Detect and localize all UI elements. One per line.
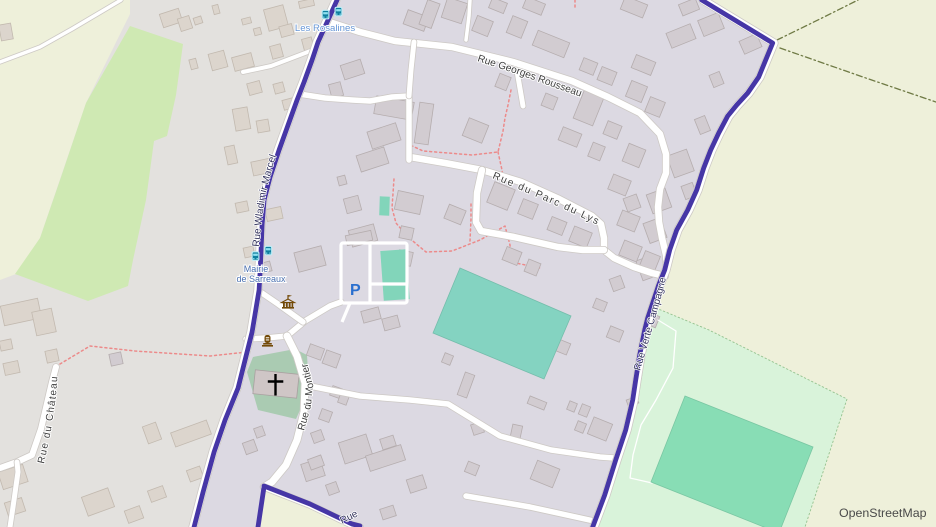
svg-text:Mairie: Mairie (244, 264, 269, 274)
svg-text:P: P (350, 282, 361, 299)
svg-text:Les Rosalines: Les Rosalines (295, 23, 355, 34)
svg-text:OpenStreetMap: OpenStreetMap (839, 506, 927, 520)
svg-text:de Sarreaux: de Sarreaux (236, 274, 286, 284)
